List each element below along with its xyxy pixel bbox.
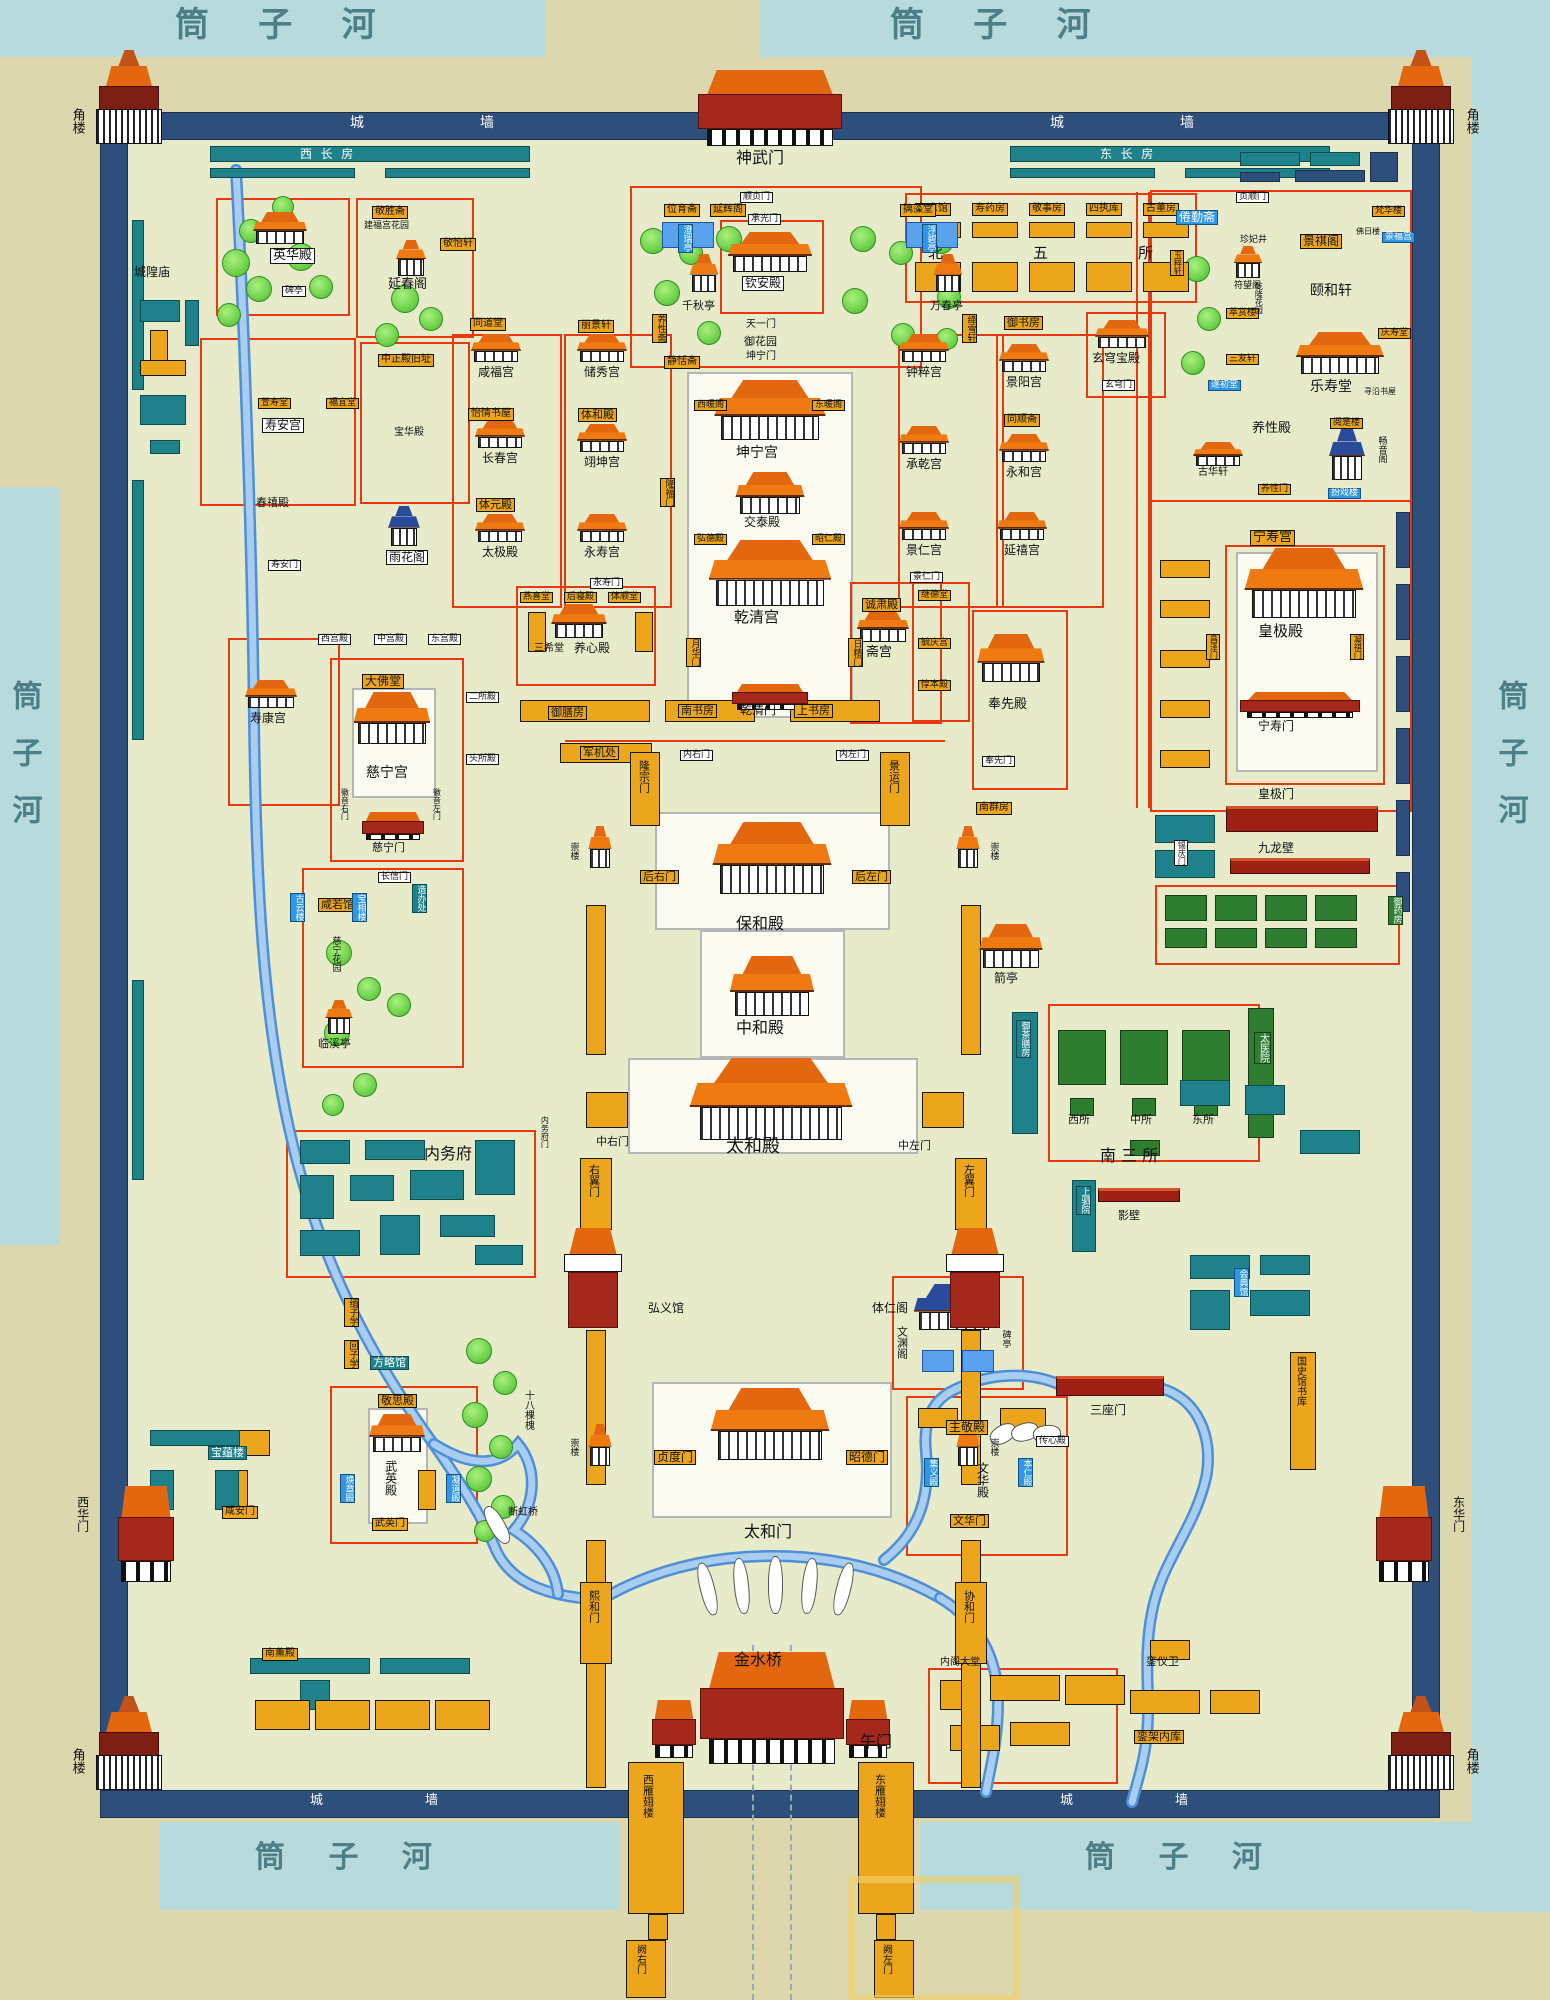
map-label: 乾隆花园 (1254, 282, 1262, 314)
map-label: 传心殿 (1036, 1436, 1069, 1447)
map-label: 宁寿门 (1258, 720, 1294, 733)
icon-part (977, 648, 1044, 662)
icon-part (1252, 590, 1356, 618)
qianqinggong-label: 乾清宫 (734, 610, 779, 626)
map-label: 承光门 (748, 214, 781, 225)
map-label: 集义殿 (924, 1458, 939, 1487)
map-label: 五 (1033, 246, 1048, 262)
icon-part (902, 443, 946, 454)
map-label: 西暖阁 (694, 400, 727, 411)
map-label: 延禧宫 (1004, 544, 1040, 557)
map-label: 九龙壁 (1258, 842, 1294, 855)
icon-part (1244, 569, 1363, 590)
map-label: 凝道殿 (446, 1474, 461, 1503)
taihedian-label: 太和殿 (726, 1138, 780, 1157)
building-block (1086, 222, 1132, 238)
map-label: 斋宫 (866, 646, 892, 660)
map-label: 倦勤斋 (1176, 210, 1218, 225)
building-block (1210, 1690, 1260, 1714)
map-label: 中右门 (596, 1136, 629, 1148)
palace-hall-icon (1242, 548, 1366, 618)
bridge-icon (768, 1556, 783, 1614)
map-label: 城 (1050, 116, 1067, 131)
palace-hall-icon (576, 514, 628, 542)
map-label: 承乾宫 (906, 458, 942, 471)
map-label: 城 (310, 1794, 326, 1808)
map-label: 养性斋 (652, 314, 667, 343)
icon-part (1309, 332, 1372, 345)
icon-part (707, 129, 834, 146)
icon-part (331, 1000, 346, 1009)
building-block (1396, 512, 1410, 568)
red-screen-wall (1226, 806, 1378, 832)
icon-part (1002, 451, 1046, 462)
palace-hall-icon (1094, 320, 1150, 348)
wenhuadian-label: 文华殿 (976, 1462, 989, 1498)
building-block (1240, 172, 1280, 182)
pavilion-icon (1228, 246, 1268, 278)
map-label: 同顺斋 (1004, 414, 1040, 427)
icon-part (958, 1447, 977, 1466)
palace-hall-icon (710, 822, 834, 894)
donghuamen-label: 东华门 (1452, 1496, 1465, 1532)
map-label: 三友轩 (1226, 354, 1259, 365)
icon-part (1006, 434, 1041, 443)
icon-part (577, 522, 627, 530)
map-label: 箭亭 (994, 972, 1018, 985)
icon-part (1332, 456, 1362, 480)
building-block (475, 1140, 515, 1195)
map-label: 顺贞门 (740, 192, 773, 203)
tree-icon (419, 307, 443, 331)
map-label: 景运门 (888, 760, 900, 793)
map-label: 上书房 (794, 704, 833, 718)
icon-part (369, 1425, 425, 1436)
icon-part (365, 692, 419, 709)
map-label: 筒子河 (8, 680, 40, 851)
building-block (1160, 650, 1210, 668)
icon-part (366, 834, 421, 840)
building-block (1260, 1255, 1310, 1275)
map-label: 所 (1138, 246, 1153, 262)
building-block (1248, 1008, 1274, 1138)
tree-icon (1197, 307, 1221, 331)
icon-part (689, 1083, 852, 1108)
icon-part (696, 254, 712, 264)
palace-gate-icon (362, 812, 424, 840)
map-label: 畅音阁 (1376, 436, 1385, 463)
pavilion-tower-icon (390, 240, 432, 276)
palace-hall-icon (244, 680, 298, 708)
icon-part (474, 351, 518, 362)
map-label: 御药房 (1388, 896, 1403, 925)
icon-part (989, 924, 1034, 938)
tree-icon (654, 280, 680, 306)
icon-part (559, 604, 598, 615)
map-label: 体和殿 (578, 408, 617, 422)
map-label: 隆福门 (660, 478, 675, 507)
building-block (1240, 152, 1300, 166)
icon-part (1006, 344, 1041, 353)
tree-icon (246, 276, 272, 302)
icon-part (716, 580, 824, 606)
icon-part (1329, 442, 1365, 457)
icon-part (121, 1561, 170, 1582)
icon-part (652, 1719, 696, 1746)
map-label: 敬思殿 (378, 1394, 417, 1408)
map-label: 阅是楼 (1330, 418, 1363, 429)
icon-part (1200, 442, 1235, 450)
icon-part (253, 680, 290, 689)
icon-part (735, 485, 804, 498)
map-label: 銮架内库 (1134, 1730, 1184, 1744)
map-label: 古董房 (1143, 203, 1179, 216)
icon-part (999, 442, 1049, 450)
icon-part (999, 352, 1049, 360)
map-label: 崇楼 (988, 1438, 997, 1456)
building-block (628, 1762, 684, 1914)
tree-icon (466, 1466, 492, 1492)
icon-part (997, 520, 1047, 528)
icon-part (730, 822, 814, 845)
icon-part (1388, 1755, 1453, 1790)
icon-part (720, 865, 824, 894)
building-block (150, 440, 180, 454)
icon-part (728, 244, 812, 256)
map-label: 寿药房 (972, 203, 1008, 216)
map-label: 角楼 (70, 108, 84, 134)
map-label: 体仁阁 (872, 1302, 908, 1315)
building-block (435, 1700, 490, 1730)
map-label: 惇本殿 (918, 680, 951, 691)
icon-part (730, 974, 814, 992)
map-label: 千秋亭 (682, 300, 715, 312)
building-block (1396, 800, 1410, 856)
icon-part (391, 528, 417, 546)
icon-part (590, 849, 609, 868)
red-screen-wall (1098, 1188, 1180, 1202)
building-block (1160, 560, 1210, 578)
taihemen-label: 太和门 (744, 1524, 792, 1541)
icon-part (1379, 1486, 1428, 1519)
map-label: 弘德殿 (694, 534, 727, 545)
icon-part (588, 837, 611, 849)
tree-icon (697, 321, 721, 345)
map-label: 昭仁殿 (812, 534, 845, 545)
map-label: 崇楼 (568, 842, 577, 860)
map-label: 寻沿书屋 (1364, 388, 1396, 396)
map-label: 筒 子 河 (1085, 1842, 1278, 1874)
corner-tower-icon (95, 1696, 163, 1790)
icon-part (906, 334, 941, 343)
building-block (215, 1470, 239, 1510)
map-label: 御膳房 (548, 706, 587, 720)
building-block (1120, 1030, 1168, 1085)
palace-hall-icon (998, 434, 1050, 462)
map-label: 碑亭 (282, 286, 306, 297)
map-label: 回子学 (344, 1340, 359, 1369)
map-label: 遂初堂 (1208, 380, 1241, 391)
map-label: 协和门 (963, 1590, 975, 1623)
tree-icon (493, 1371, 517, 1395)
map-label: 景仁门 (910, 572, 943, 583)
map-label: 东宫殿 (428, 634, 461, 645)
icon-part (1240, 700, 1360, 712)
map-label: 寿康宫 (250, 712, 286, 725)
icon-part (325, 1009, 352, 1019)
map-label: 碑亭 (1000, 1330, 1009, 1348)
icon-part (396, 249, 426, 259)
building-block (972, 262, 1018, 292)
palace-gate-icon (698, 70, 842, 146)
map-label: 养性门 (1258, 484, 1291, 495)
palace-hall-icon (576, 424, 628, 452)
building-block (1265, 895, 1307, 921)
icon-part (99, 1732, 159, 1756)
map-label: 古华轩 (1198, 468, 1228, 479)
palace-hall-icon (976, 634, 1046, 682)
map-label: 熙和门 (588, 1590, 600, 1623)
xihuamen-label: 西华门 (76, 1496, 89, 1532)
map-label: 怡情书屋 (468, 408, 514, 421)
map-label: 咸安门 (222, 1506, 258, 1519)
map-label: 养心殿 (574, 642, 610, 655)
map-label: 钟粹宫 (906, 366, 942, 379)
map-label: 永和宫 (1006, 466, 1042, 479)
building-block (255, 1700, 310, 1730)
icon-part (713, 1058, 829, 1084)
pavilion-icon (320, 1000, 358, 1034)
building-block (1265, 928, 1307, 948)
ningshougong-label: 宁寿宫 (1250, 530, 1295, 546)
icon-part (482, 514, 517, 523)
palace-hall-icon (474, 514, 526, 542)
building-block (140, 395, 186, 425)
map-label: 庆寿堂 (1378, 328, 1411, 339)
map-label: 焕章殿 (340, 1474, 355, 1503)
map-label: 西宫殿 (318, 634, 351, 645)
building-block (140, 360, 186, 376)
map-label: 摛藻堂 (900, 204, 936, 217)
icon-part (1262, 548, 1346, 570)
map-label: 澄瑞亭 (678, 224, 693, 253)
building-block (1300, 1130, 1360, 1154)
palace-hall-icon (1192, 442, 1244, 466)
map-label: 寿安宫 (262, 418, 304, 433)
icon-part (1234, 254, 1263, 263)
palace-hall-icon (712, 380, 828, 440)
map-label: 中宫殿 (374, 634, 407, 645)
red-screen-wall (1230, 858, 1370, 874)
map-label: 后左门 (852, 870, 891, 884)
icon-part (577, 432, 627, 440)
building-block (626, 1940, 666, 1998)
map-label: 东所 (1192, 1114, 1214, 1126)
palace-hall-icon (708, 1388, 832, 1460)
building-block (1086, 262, 1132, 292)
icon-part (1002, 361, 1046, 372)
map-label: 春禧殿 (256, 497, 289, 509)
building-block (380, 1215, 420, 1255)
map-label: 角楼 (70, 1748, 84, 1774)
palace-hall-icon (470, 334, 522, 362)
map-label: 天一门 (746, 320, 776, 331)
map-label: 延辉阁 (710, 204, 746, 217)
building-block (350, 1175, 394, 1201)
map-label: 上驷院 (1076, 1186, 1091, 1215)
map-label: 太医院 (1254, 1032, 1271, 1064)
icon-part (1004, 512, 1039, 521)
icon-part (118, 50, 140, 67)
map-label: 毓庆宫 (918, 638, 951, 649)
map-label: 墙 (1180, 116, 1197, 131)
map-label: 徽音右门 (340, 788, 348, 820)
building-block (410, 1170, 464, 1200)
icon-part (403, 240, 420, 249)
tree-icon (309, 275, 333, 299)
icon-part (740, 497, 800, 514)
palace-hall-icon (898, 334, 950, 362)
pavilion-tower-icon (584, 826, 616, 868)
palace-hall-icon (252, 212, 308, 244)
palace-hall-icon (550, 604, 608, 638)
map-label: 玉粹轩 (1170, 250, 1184, 276)
map-label: 景福宫 (1382, 232, 1415, 243)
icon-part (1098, 337, 1145, 348)
map-label: 内务府门 (540, 1116, 548, 1148)
icon-part (584, 514, 619, 523)
map-label: 凝祺门 (1350, 634, 1364, 660)
building-block (1396, 584, 1410, 640)
map-label: 静恬斋 (664, 356, 700, 369)
map-label: 徽音左门 (432, 788, 440, 820)
icon-part (1193, 449, 1243, 456)
icon-part (1240, 246, 1256, 254)
map-label: 西所 (1068, 1114, 1090, 1126)
icon-part (956, 837, 979, 849)
tree-icon (353, 1073, 377, 1097)
icon-part (118, 1517, 174, 1561)
map-label: 阙右门 (634, 1944, 645, 1974)
building-block (922, 1092, 964, 1128)
building-block (140, 300, 180, 322)
map-label: 咸福宫 (478, 366, 514, 379)
pavilion-tower-icon (584, 1424, 616, 1466)
icon-part (958, 849, 977, 868)
icon-part (899, 434, 949, 442)
icon-part (377, 1414, 416, 1426)
icon-part (1379, 1561, 1428, 1582)
building-block (1215, 928, 1257, 948)
map-label: 体元殿 (476, 498, 515, 512)
map-label: 内务府 (424, 1146, 472, 1163)
map-label: 梵华楼 (1372, 206, 1405, 217)
building-block (1295, 170, 1365, 182)
map-label: 筒 子 河 (175, 8, 394, 44)
map-label: 文华门 (950, 1514, 989, 1528)
map-label: 西雁翅楼 (642, 1774, 654, 1818)
map-label: 主敬殿 (946, 1420, 988, 1435)
icon-part (728, 1388, 812, 1411)
map-label: 国史馆书库 (1294, 1356, 1305, 1406)
map-label: 钦安殿 (742, 276, 784, 291)
zhonghedian-label: 中和殿 (736, 1020, 784, 1037)
map-label: 奉先门 (982, 756, 1015, 767)
map-label: 造办处 (412, 884, 427, 913)
red-screen-wall (1056, 1376, 1164, 1396)
icon-part (588, 1435, 611, 1447)
icon-part (987, 634, 1035, 649)
building-block (1165, 928, 1207, 948)
shenwumen-label: 神武门 (736, 150, 784, 167)
icon-part (746, 472, 795, 485)
palace-hall-icon (856, 610, 910, 642)
building-block (990, 1675, 1060, 1701)
map-label: 永寿宫 (584, 546, 620, 559)
icon-part (1095, 328, 1149, 336)
icon-part (118, 1696, 140, 1713)
icon-part (709, 560, 832, 580)
icon-part (96, 1755, 161, 1790)
building-block (1180, 1080, 1230, 1106)
map-label: 宝相楼 (352, 893, 367, 922)
palace-hall-icon (726, 232, 814, 272)
tree-icon (322, 1094, 344, 1116)
building-block (385, 168, 530, 178)
map-label: 城 (1060, 1794, 1076, 1808)
map-label: 养性殿 (1252, 422, 1291, 436)
icon-part (478, 531, 522, 542)
tree-icon (462, 1402, 488, 1428)
map-label: 位育斋 (664, 204, 700, 217)
map-label: 断虹桥 (508, 1508, 538, 1519)
map-label: 崇楼 (568, 1438, 577, 1456)
icon-part (594, 826, 607, 837)
map-label: 贞顺门 (1236, 192, 1269, 203)
icon-part (714, 398, 825, 416)
building-block (210, 168, 355, 178)
icon-part (121, 1486, 170, 1519)
icon-part (475, 428, 525, 436)
map-label: 坤宁门 (746, 352, 776, 363)
icon-part (96, 109, 161, 144)
building-block (586, 1540, 606, 1585)
map-label: 弘义馆 (648, 1302, 684, 1315)
map-label: 太极殿 (482, 546, 518, 559)
building-block (300, 1175, 334, 1219)
kunninggong-label: 坤宁宫 (736, 446, 778, 461)
huangjidian-label: 皇极殿 (1258, 624, 1303, 640)
map-label: 御书房 (1004, 316, 1043, 330)
icon-part (951, 1228, 998, 1254)
building-block (1058, 1030, 1106, 1085)
icon-part (906, 512, 941, 521)
building-block (922, 1350, 954, 1372)
pavilion-tower-icon (952, 826, 984, 868)
jinshuiqiao-label: 金水桥 (734, 1652, 782, 1669)
map-label: 日精门 (848, 638, 863, 667)
building-block (586, 1092, 628, 1128)
map-label: 城 (350, 116, 367, 131)
icon-part (1000, 529, 1044, 540)
icon-part (580, 531, 624, 542)
icon-part (655, 1700, 694, 1720)
map-label: 南书房 (678, 704, 717, 718)
map-label: 本仁殿 (1018, 1458, 1033, 1487)
icon-part (555, 624, 604, 638)
icon-part (580, 351, 624, 362)
palace-gate-icon (652, 1700, 696, 1758)
